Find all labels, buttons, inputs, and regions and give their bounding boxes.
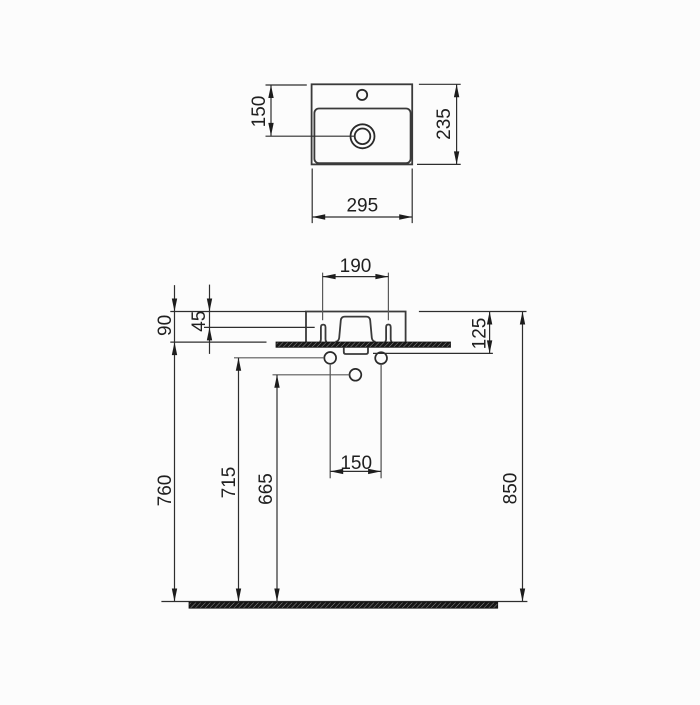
svg-text:760: 760 xyxy=(155,475,176,507)
svg-text:715: 715 xyxy=(219,467,240,499)
svg-text:150: 150 xyxy=(249,96,270,128)
svg-text:235: 235 xyxy=(434,108,455,140)
svg-text:190: 190 xyxy=(340,256,372,277)
svg-text:665: 665 xyxy=(256,473,277,505)
svg-text:850: 850 xyxy=(500,473,521,505)
svg-text:45: 45 xyxy=(189,311,210,332)
svg-text:125: 125 xyxy=(469,318,490,350)
svg-text:90: 90 xyxy=(155,315,176,336)
svg-text:150: 150 xyxy=(340,453,372,474)
svg-text:295: 295 xyxy=(346,196,378,217)
